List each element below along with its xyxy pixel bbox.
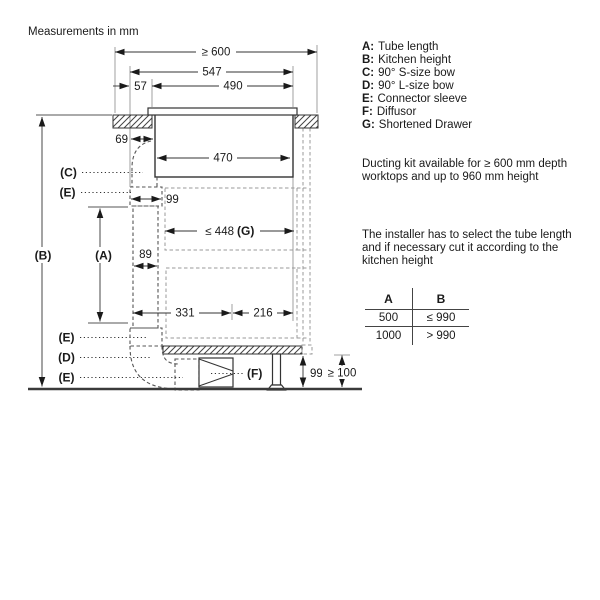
svg-text:(E): (E) <box>59 371 75 385</box>
cabinet-side-panel <box>297 128 310 344</box>
legend-item-e: E:Connector sleeve <box>362 93 472 106</box>
dim-tube-length-a: (A) <box>88 207 128 323</box>
connector-sleeve-top <box>130 187 162 206</box>
lower-drawer-outline <box>166 268 297 338</box>
svg-text:(F): (F) <box>247 367 262 381</box>
legend-item-a: A:Tube length <box>362 41 472 54</box>
table-header-a: A <box>365 288 413 310</box>
svg-text:89: 89 <box>139 249 152 261</box>
dim-69: 69 <box>115 134 153 146</box>
dim-plinth-99: 99 <box>303 356 323 387</box>
availability-note: Ducting kit available for ≥ 600 mm depth… <box>362 158 572 184</box>
svg-text:(E): (E) <box>60 186 76 200</box>
svg-text:470: 470 <box>213 153 232 165</box>
dim-331-216: 331 216 <box>133 307 293 320</box>
table-cell-a2: 1000 <box>365 327 413 345</box>
plinth-panel <box>163 345 312 354</box>
svg-text:69: 69 <box>115 134 128 146</box>
svg-text:≥ 600: ≥ 600 <box>202 47 231 59</box>
tube <box>133 206 158 328</box>
legend-item-f: F:Diffusor <box>362 106 472 119</box>
svg-text:(B): (B) <box>35 249 52 263</box>
table-cell-b1: ≤ 990 <box>413 310 469 327</box>
legend-item-c: C:90° S-size bow <box>362 67 472 80</box>
svg-text:(G): (G) <box>237 224 254 238</box>
connector-sleeve-bottom <box>175 359 199 390</box>
installer-note: The installer has to select the tube len… <box>362 229 572 268</box>
svg-text:216: 216 <box>253 308 272 320</box>
legend-item-d: D:90° L-size bow <box>362 80 472 93</box>
tube-length-table: A B 500 ≤ 990 1000 > 990 <box>365 288 469 345</box>
connector-sleeve-mid <box>130 328 162 346</box>
legend-item-g: G:Shortened Drawer <box>362 119 472 132</box>
dim-depth-600: ≥ 600 <box>115 46 317 59</box>
svg-text:(C): (C) <box>60 166 77 180</box>
svg-text:490: 490 <box>223 81 242 93</box>
svg-text:547: 547 <box>202 67 221 79</box>
table-header-b: B <box>413 288 469 310</box>
dim-plinth-100: ≥ 100 <box>322 356 362 388</box>
cabinet-leg <box>268 354 286 390</box>
diffusor <box>199 358 233 387</box>
hob-body <box>148 108 297 177</box>
svg-text:99: 99 <box>310 368 323 380</box>
table-cell-a1: 500 <box>365 310 413 327</box>
svg-text:99: 99 <box>166 194 179 206</box>
dim-547: 547 <box>130 66 293 79</box>
table-cell-b2: > 990 <box>413 327 469 345</box>
dim-sleeve-99: 99 <box>131 194 179 206</box>
svg-text:(D): (D) <box>58 351 75 365</box>
svg-text:331: 331 <box>175 308 194 320</box>
svg-text:≥ 100: ≥ 100 <box>328 368 357 380</box>
dim-490: 490 <box>152 80 293 93</box>
parts-legend: A:Tube length B:Kitchen height C:90° S-s… <box>362 41 472 132</box>
svg-text:57: 57 <box>134 81 147 93</box>
installation-diagram: (B) (A) ≥ 600 547 57 490 <box>0 0 600 600</box>
shortened-drawer-outline <box>165 188 297 250</box>
legend-item-b: B:Kitchen height <box>362 54 472 67</box>
svg-text:(A): (A) <box>95 249 112 263</box>
dim-drawer-448: ≤ 448 (G) <box>165 224 294 238</box>
svg-text:(E): (E) <box>59 331 75 345</box>
svg-text:≤ 448: ≤ 448 <box>205 226 234 238</box>
dim-tube-89: 89 <box>134 249 157 266</box>
installation-sheet: Measurements in mm <box>0 0 600 600</box>
s-bow-duct <box>132 141 151 187</box>
